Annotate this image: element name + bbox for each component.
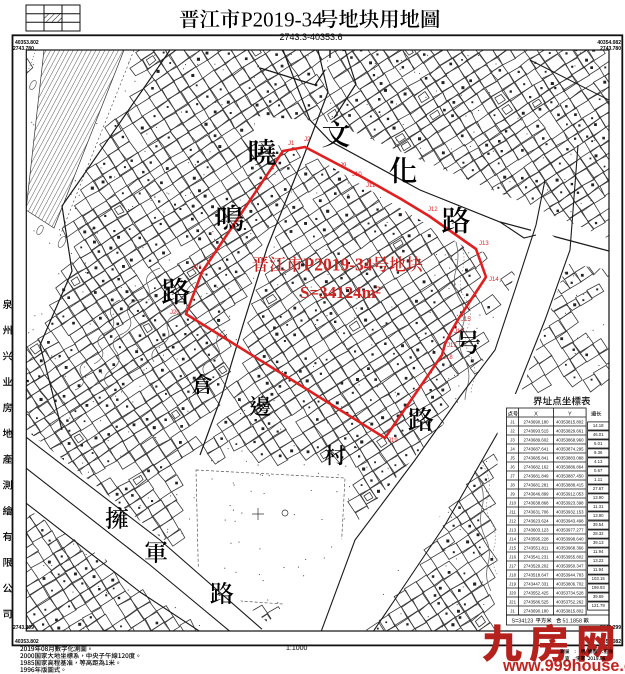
svg-text:40353752.262: 40353752.262 — [556, 599, 584, 604]
svg-text:J11: J11 — [509, 509, 516, 514]
svg-text:J20: J20 — [509, 590, 517, 595]
svg-text:2743623.624: 2743623.624 — [523, 518, 549, 523]
svg-text:P2019-34: P2019-34 — [304, 255, 373, 275]
svg-text:2743685.841: 2743685.841 — [523, 455, 549, 460]
svg-text:2743.780: 2743.780 — [600, 46, 621, 52]
svg-text:40353923.398: 40353923.398 — [556, 500, 584, 505]
svg-text:40353888.415: 40353888.415 — [556, 482, 584, 487]
svg-text:39.13: 39.13 — [593, 540, 604, 545]
svg-text:J15: J15 — [461, 317, 471, 323]
svg-text:J2: J2 — [304, 137, 311, 143]
svg-text:P2019-34: P2019-34 — [241, 8, 323, 32]
svg-text:2743.780: 2743.780 — [13, 46, 34, 52]
svg-text:121.79: 121.79 — [592, 603, 606, 608]
svg-text:2743586.525: 2743586.525 — [523, 599, 549, 604]
svg-text:39.69: 39.69 — [593, 594, 604, 599]
svg-text:2743681.849: 2743681.849 — [523, 473, 549, 478]
svg-text:2743603.123: 2743603.123 — [523, 527, 549, 532]
svg-text:40353912.053: 40353912.053 — [556, 491, 584, 496]
svg-text:40353.802: 40353.802 — [15, 639, 39, 645]
svg-text:40353815.802: 40353815.802 — [556, 419, 584, 424]
svg-text:2743681.281: 2743681.281 — [523, 482, 549, 487]
svg-text:51.1858: 51.1858 — [563, 618, 583, 624]
svg-text:2743551.811: 2743551.811 — [524, 545, 549, 550]
svg-text:2743687.641: 2743687.641 — [523, 446, 549, 451]
svg-text:46.01: 46.01 — [593, 432, 604, 437]
svg-text:40353806.702: 40353806.702 — [556, 581, 584, 586]
svg-text:40353883.088: 40353883.088 — [556, 455, 584, 460]
svg-text:J9: J9 — [510, 491, 515, 496]
svg-text:www.999house.com: www.999house.com — [502, 657, 625, 674]
svg-text:2743631.706: 2743631.706 — [523, 509, 549, 514]
svg-text:J9: J9 — [340, 163, 347, 169]
svg-text:J18: J18 — [443, 355, 453, 361]
svg-text:40353968.366: 40353968.366 — [556, 545, 584, 550]
svg-text:J3: J3 — [510, 437, 515, 442]
svg-text:11.94: 11.94 — [593, 549, 604, 554]
svg-text:1:1000: 1:1000 — [286, 645, 308, 652]
svg-text:J15: J15 — [509, 545, 517, 550]
svg-text:40353868.960: 40353868.960 — [556, 437, 584, 442]
svg-text:J8: J8 — [510, 482, 515, 487]
svg-text:40353815.802: 40353815.802 — [556, 608, 584, 613]
svg-text:2743638.868: 2743638.868 — [523, 500, 549, 505]
svg-text:40353829.661: 40353829.661 — [556, 428, 584, 433]
svg-text:199.93: 199.93 — [592, 585, 606, 590]
svg-text:13.90: 13.90 — [593, 513, 604, 518]
svg-text:J1: J1 — [510, 419, 515, 424]
svg-text:J13: J13 — [509, 527, 517, 532]
svg-text:X: X — [534, 412, 538, 418]
svg-text:J12: J12 — [428, 207, 438, 213]
svg-text:J14: J14 — [489, 277, 499, 283]
svg-text:5.01: 5.01 — [594, 441, 603, 446]
svg-text:J16: J16 — [509, 554, 517, 559]
svg-text:J12: J12 — [509, 518, 517, 523]
svg-text:40353886.864: 40353886.864 — [556, 464, 584, 469]
svg-text:40353950.347: 40353950.347 — [556, 563, 584, 568]
svg-text:2743552.425: 2743552.425 — [523, 590, 549, 595]
svg-text:40353944.783: 40353944.783 — [556, 572, 584, 577]
svg-text:11.94: 11.94 — [593, 567, 604, 572]
svg-text:J17: J17 — [509, 563, 517, 568]
svg-text:2743690.180: 2743690.180 — [523, 608, 549, 613]
svg-text:40353887.450: 40353887.450 — [556, 473, 584, 478]
svg-text:J21: J21 — [509, 599, 517, 604]
svg-text:J14: J14 — [509, 536, 517, 541]
svg-text:S=34124m²: S=34124m² — [300, 283, 381, 302]
svg-text:2743447.331: 2743447.331 — [523, 581, 549, 586]
svg-text:40353874.295: 40353874.295 — [556, 446, 584, 451]
svg-text:40353955.802: 40353955.802 — [556, 554, 584, 559]
svg-text:40353734.528: 40353734.528 — [556, 590, 584, 595]
svg-text:2743518.647: 2743518.647 — [523, 572, 549, 577]
svg-text:2743541.231: 2743541.231 — [523, 554, 549, 559]
svg-text:J1: J1 — [288, 141, 295, 147]
svg-text:2743689.602: 2743689.602 — [523, 437, 549, 442]
svg-text:11.31: 11.31 — [593, 504, 604, 509]
svg-text:Y: Y — [568, 412, 572, 418]
svg-text:9.36: 9.36 — [594, 450, 603, 455]
svg-text:0.67: 0.67 — [594, 468, 603, 473]
svg-text:J21: J21 — [192, 265, 202, 271]
svg-text:J7: J7 — [510, 473, 515, 478]
svg-text:J19: J19 — [388, 438, 398, 444]
svg-text:40353998.640: 40353998.640 — [556, 536, 584, 541]
svg-text:1.11: 1.11 — [594, 477, 603, 482]
svg-text:J6: J6 — [510, 464, 515, 469]
svg-text:J17: J17 — [447, 343, 457, 349]
svg-text:J11: J11 — [366, 183, 376, 189]
svg-text:28.32: 28.32 — [593, 531, 604, 536]
svg-text:27.67: 27.67 — [593, 486, 604, 491]
svg-text:13.22: 13.22 — [593, 558, 604, 563]
svg-text:2743690.180: 2743690.180 — [523, 419, 549, 424]
svg-text:2743595.228: 2743595.228 — [523, 536, 549, 541]
svg-text:2743646.899: 2743646.899 — [523, 491, 549, 496]
svg-text:4.13: 4.13 — [594, 459, 603, 464]
svg-text:2743.3-40353.6: 2743.3-40353.6 — [279, 32, 342, 42]
svg-text:J18: J18 — [509, 572, 517, 577]
svg-text:J20: J20 — [170, 310, 180, 316]
svg-text:13.90: 13.90 — [593, 495, 604, 500]
svg-text:S=34123: S=34123 — [512, 618, 534, 624]
svg-text:103.15: 103.15 — [592, 576, 606, 581]
svg-text:40353943.498: 40353943.498 — [556, 518, 584, 523]
svg-text:40353932.153: 40353932.153 — [556, 509, 584, 514]
svg-text:J5: J5 — [510, 455, 515, 460]
svg-text:2743693.515: 2743693.515 — [523, 428, 549, 433]
svg-text:J2: J2 — [510, 428, 515, 433]
svg-text:J4: J4 — [510, 446, 515, 451]
svg-text:2743.299: 2743.299 — [13, 625, 34, 631]
svg-text:J19: J19 — [509, 581, 517, 586]
svg-text:J10: J10 — [352, 172, 362, 178]
svg-text:2743529.202: 2743529.202 — [523, 563, 549, 568]
svg-text:J13: J13 — [479, 241, 489, 247]
svg-text:J10: J10 — [509, 500, 517, 505]
svg-text:39.54: 39.54 — [593, 522, 604, 527]
svg-text:14.18: 14.18 — [593, 423, 604, 428]
svg-text:2743682.162: 2743682.162 — [523, 464, 549, 469]
svg-text:J1: J1 — [510, 608, 515, 613]
svg-text:40353977.277: 40353977.277 — [556, 527, 584, 532]
